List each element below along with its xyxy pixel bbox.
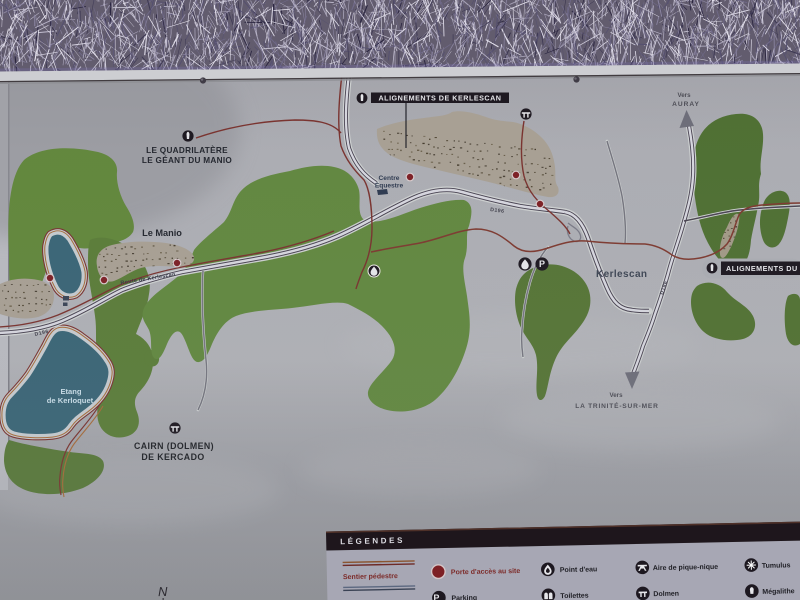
- svg-text:N: N: [158, 584, 168, 599]
- svg-text:LÉGENDES: LÉGENDES: [340, 536, 405, 546]
- svg-text:Toilettes: Toilettes: [560, 593, 589, 600]
- svg-text:Sentier pédestre: Sentier pédestre: [343, 573, 398, 581]
- svg-text:Tumulus: Tumulus: [762, 562, 791, 570]
- svg-text:Porte d'accès au site: Porte d'accès au site: [451, 568, 521, 576]
- svg-text:Parking: Parking: [451, 595, 477, 600]
- svg-text:Point d'eau: Point d'eau: [560, 566, 598, 574]
- svg-text:Dolmen: Dolmen: [653, 591, 679, 599]
- svg-text:P: P: [433, 593, 439, 600]
- svg-text:Aire de pique-nique: Aire de pique-nique: [653, 564, 719, 572]
- svg-text:Mégalithe: Mégalithe: [762, 588, 795, 596]
